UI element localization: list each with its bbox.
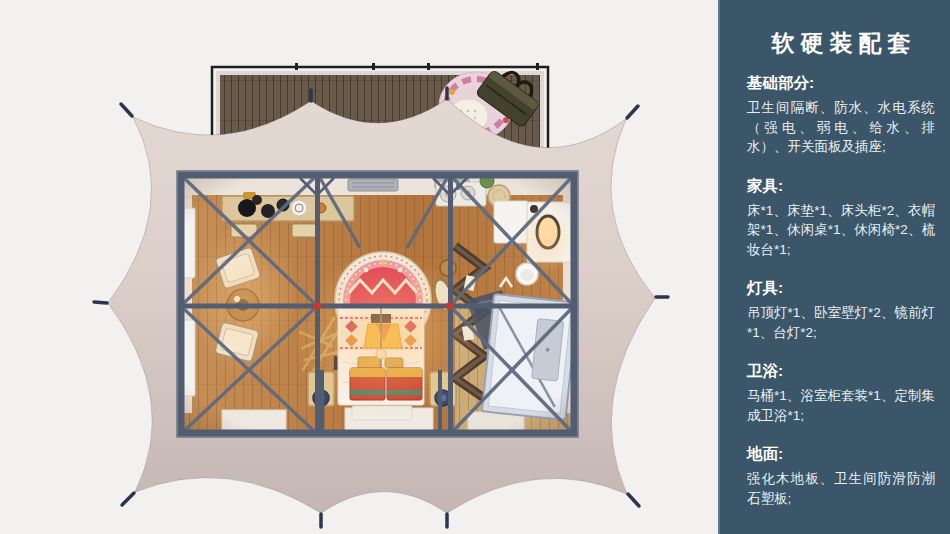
page: 软硬装配套 基础部分: 卫生间隔断、防水、水电系统（强电、弱电、给水、排水）、开…	[0, 0, 950, 534]
tent-floorplan-panel	[0, 0, 718, 534]
section-body: 卫生间隔断、防水、水电系统（强电、弱电、给水、排水）、开关面板及插座;	[747, 98, 935, 157]
spec-section-lighting: 灯具: 吊顶灯*1、卧室壁灯*2、镜前灯*1、台灯*2;	[747, 277, 935, 342]
sidebar-title: 软硬装配套	[747, 28, 935, 58]
spec-section-flooring: 地面: 强化木地板、卫生间防滑防潮石塑板;	[747, 443, 935, 508]
frame-joint	[313, 302, 321, 310]
section-body: 马桶*1、浴室柜套装*1、定制集成卫浴*1;	[747, 386, 935, 425]
frame-joint	[446, 302, 454, 310]
spec-section-furniture: 家具: 床*1、床垫*1、床头柜*2、衣帽架*1、休闲桌*1、休闲椅*2、梳妆台…	[747, 175, 935, 260]
section-body: 吊顶灯*1、卧室壁灯*2、镜前灯*1、台灯*2;	[747, 303, 935, 342]
section-body: 床*1、床垫*1、床头柜*2、衣帽架*1、休闲桌*1、休闲椅*2、梳妆台*1;	[747, 201, 935, 260]
spec-section-bathroom: 卫浴: 马桶*1、浴室柜套装*1、定制集成卫浴*1;	[747, 360, 935, 425]
tent-floorplan-illustration	[0, 0, 718, 534]
spec-sidebar: 软硬装配套 基础部分: 卫生间隔断、防水、水电系统（强电、弱电、给水、排水）、开…	[718, 0, 950, 534]
section-heading: 灯具:	[747, 277, 935, 298]
section-heading: 卫浴:	[747, 360, 935, 381]
section-heading: 家具:	[747, 175, 935, 196]
section-heading: 地面:	[747, 443, 935, 464]
section-body: 强化木地板、卫生间防滑防潮石塑板;	[747, 469, 935, 508]
spec-section-basics: 基础部分: 卫生间隔断、防水、水电系统（强电、弱电、给水、排水）、开关面板及插座…	[747, 72, 935, 157]
section-heading: 基础部分:	[747, 72, 935, 93]
